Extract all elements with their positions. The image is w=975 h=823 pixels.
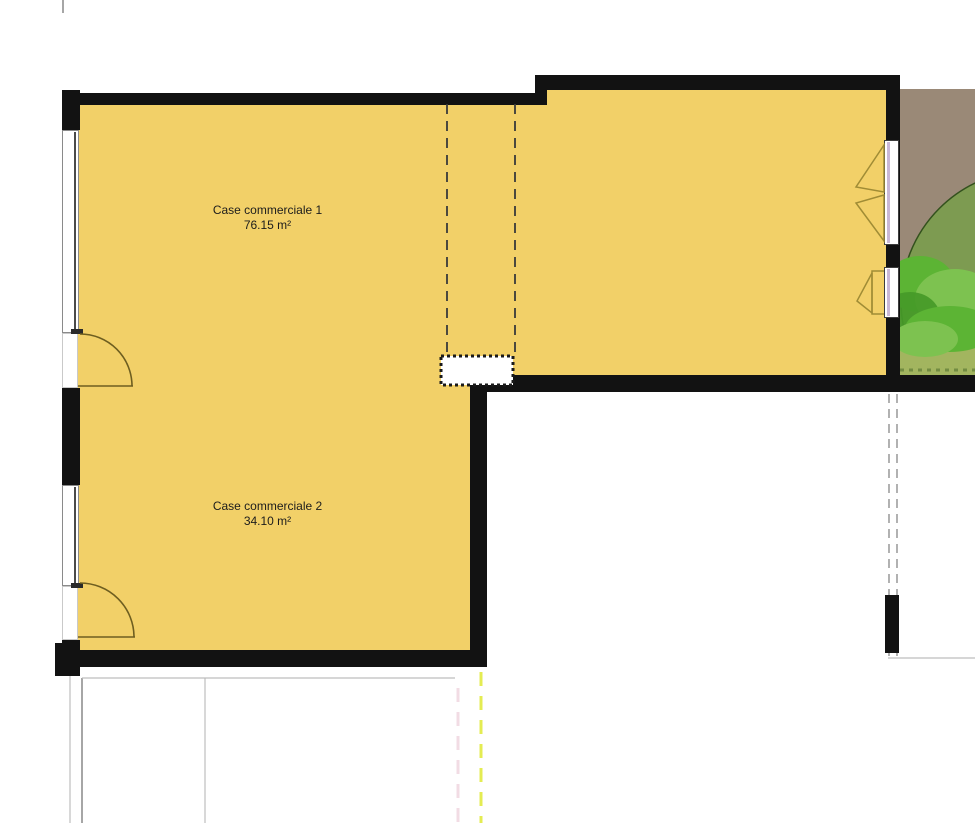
door-swing-icon-upper (71, 329, 133, 386)
shutter-triangle (857, 273, 872, 313)
folding-shutter-icon-lower (857, 271, 884, 314)
plan-linework (0, 0, 975, 823)
floor-plan-canvas: Case commerciale 1 76.15 m² Case commerc… (0, 0, 975, 823)
shutter-bracket (872, 271, 884, 314)
shutter-triangle (856, 195, 884, 241)
door-swing-arc (80, 334, 132, 386)
door-swing-arc (80, 583, 134, 637)
wall-pier (885, 595, 899, 653)
door-swing-icon-lower (71, 583, 135, 637)
room-label-commercial-2: Case commerciale 2 34.10 m² (155, 499, 380, 529)
low-wall-counter (441, 356, 513, 385)
room-label-commercial-1: Case commerciale 1 76.15 m² (155, 203, 380, 233)
folding-shutter-icon-upper (856, 145, 884, 241)
room-name: Case commerciale 2 (155, 499, 380, 514)
room-name: Case commerciale 1 (155, 203, 380, 218)
room-area: 76.15 m² (155, 218, 380, 233)
room-area: 34.10 m² (155, 514, 380, 529)
shutter-triangle (856, 145, 884, 192)
